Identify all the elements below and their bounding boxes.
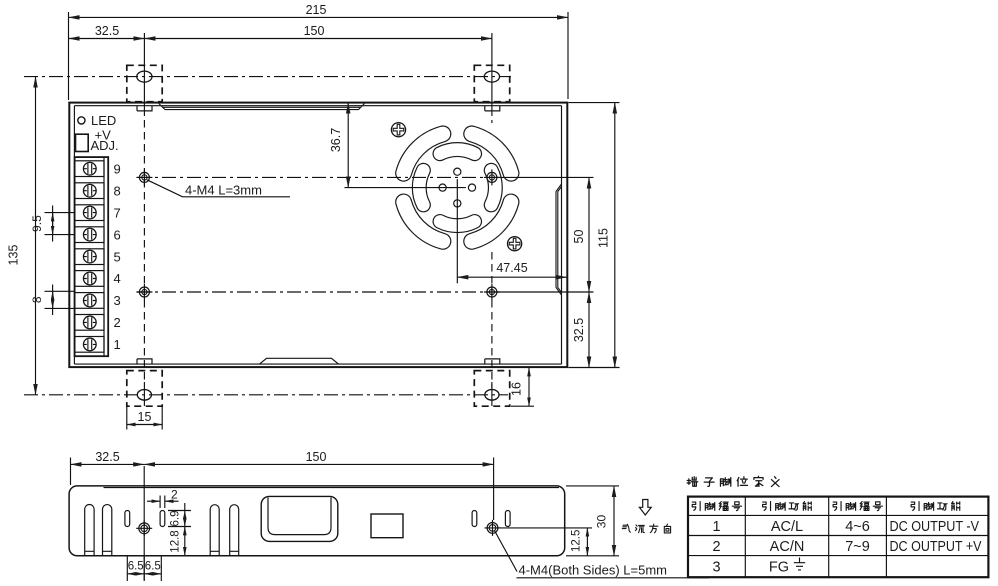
svg-text:AC/N: AC/N — [770, 539, 805, 555]
svg-text:4-M4(Both Sides) L=5mm: 4-M4(Both Sides) L=5mm — [519, 563, 667, 578]
svg-text:6: 6 — [114, 227, 121, 242]
svg-text:2: 2 — [713, 539, 721, 555]
svg-text:AC/L: AC/L — [771, 519, 803, 535]
svg-text:115: 115 — [597, 228, 611, 248]
svg-text:LED: LED — [91, 113, 116, 128]
svg-text:3: 3 — [713, 559, 721, 575]
svg-text:5: 5 — [114, 249, 121, 264]
svg-text:47.45: 47.45 — [496, 261, 527, 275]
svg-text:2: 2 — [114, 315, 121, 330]
svg-text:7~9: 7~9 — [845, 539, 870, 555]
svg-text:150: 150 — [304, 24, 325, 38]
svg-text:150: 150 — [306, 450, 327, 464]
svg-text:4-M4 L=3mm: 4-M4 L=3mm — [185, 183, 262, 198]
svg-text:16: 16 — [510, 382, 524, 396]
svg-text:8: 8 — [114, 183, 121, 198]
svg-text:30: 30 — [595, 515, 609, 529]
svg-text:6.9: 6.9 — [170, 511, 182, 527]
svg-text:8: 8 — [30, 296, 44, 303]
svg-text:4: 4 — [114, 271, 121, 286]
svg-text:50: 50 — [572, 230, 586, 244]
svg-text:6.5: 6.5 — [128, 561, 144, 573]
svg-text:FG: FG — [769, 559, 789, 575]
svg-text:15: 15 — [138, 410, 152, 424]
svg-text:7: 7 — [114, 205, 121, 220]
svg-text:32.5: 32.5 — [95, 24, 119, 38]
svg-text:12.8: 12.8 — [170, 530, 182, 552]
svg-text:DC OUTPUT -V: DC OUTPUT -V — [890, 519, 980, 535]
svg-text:ADJ.: ADJ. — [91, 138, 119, 153]
svg-text:9.5: 9.5 — [30, 215, 44, 232]
svg-text:32.5: 32.5 — [572, 318, 586, 342]
svg-text:3: 3 — [114, 293, 121, 308]
svg-text:12.5: 12.5 — [571, 530, 583, 552]
svg-text:1: 1 — [114, 337, 121, 352]
svg-text:1: 1 — [713, 519, 721, 535]
svg-text:9: 9 — [114, 161, 121, 176]
svg-text:36.7: 36.7 — [329, 128, 343, 152]
svg-text:215: 215 — [306, 3, 327, 17]
svg-text:135: 135 — [7, 245, 21, 266]
svg-text:6.5: 6.5 — [145, 561, 161, 573]
svg-text:2: 2 — [171, 488, 178, 502]
svg-text:DC OUTPUT +V: DC OUTPUT +V — [890, 539, 982, 555]
svg-text:4~6: 4~6 — [845, 519, 870, 535]
svg-text:32.5: 32.5 — [95, 450, 119, 464]
